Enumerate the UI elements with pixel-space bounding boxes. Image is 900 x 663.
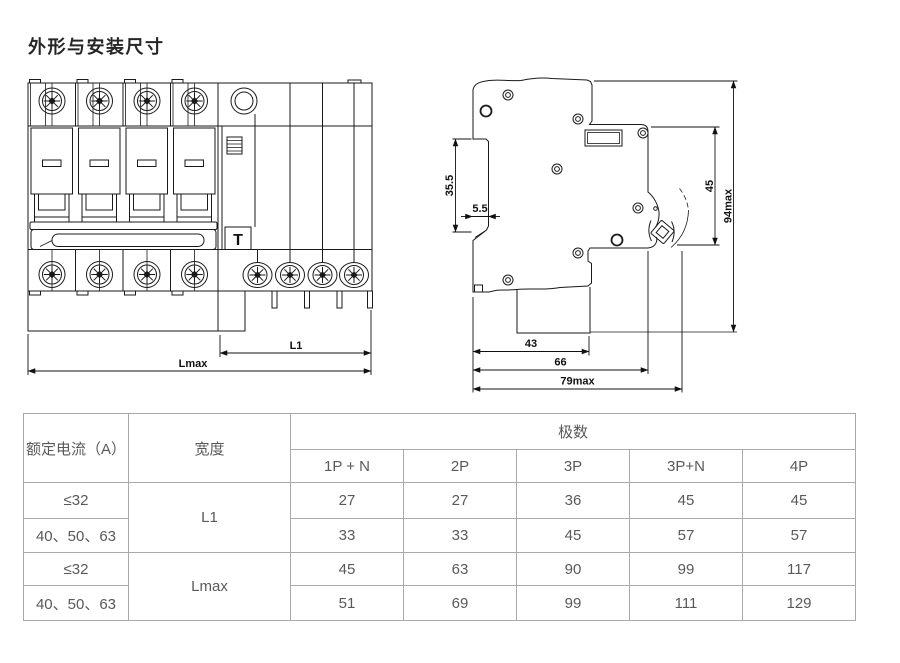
table-cell: 33 <box>404 519 517 553</box>
dim-label-lmax: Lmax <box>179 358 209 370</box>
table-cell: 117 <box>743 553 856 586</box>
table-cell: 57 <box>630 519 743 553</box>
test-button-label: T <box>233 232 243 249</box>
dim-label-66: 66 <box>554 357 566 369</box>
front-view-dimensions: L1 Lmax <box>28 310 371 375</box>
breaker-side-outline <box>473 78 659 292</box>
dimensions-table: 额定电流（A） 宽度 极数 1P + N 2P 3P 3P+N 4P ≤32 L… <box>23 413 856 621</box>
table-row: ≤32 L1 27 27 36 45 45 <box>24 483 856 519</box>
table-row: ≤32 Lmax 45 63 90 99 117 <box>24 553 856 586</box>
table-cell: 63 <box>404 553 517 586</box>
rating-label-window <box>585 130 622 146</box>
dim-label-43: 43 <box>525 338 537 350</box>
toggle-tie-bar <box>30 222 217 250</box>
dim-label-5-5: 5.5 <box>472 203 487 215</box>
dim-label-94max: 94max <box>723 188 735 223</box>
side-view-drawing: 35.5 5.5 45 94max 43 66 <box>444 78 738 392</box>
dim-label-l1: L1 <box>290 340 303 352</box>
handle-slots <box>35 194 212 222</box>
table-cell: 45 <box>517 519 630 553</box>
test-button <box>231 88 257 114</box>
table-cell: 90 <box>517 553 630 586</box>
table-cell: 45 <box>630 483 743 519</box>
rcd-block: T <box>222 83 373 308</box>
rcd-slider <box>227 137 242 154</box>
rcd-pins <box>272 291 373 308</box>
table-cell: 129 <box>743 586 856 621</box>
dimension-drawings: T L1 Lmax <box>0 0 900 410</box>
bottom-extension <box>517 287 590 333</box>
table-header-width: 宽度 <box>129 414 291 483</box>
table-cell: 45 <box>743 483 856 519</box>
table-cell: 99 <box>517 586 630 621</box>
side-view-dimensions: 35.5 5.5 45 94max 43 66 <box>444 81 738 393</box>
table-cell: 33 <box>291 519 404 553</box>
foot-notch <box>475 285 483 292</box>
dim-label-79max: 79max <box>560 376 595 388</box>
pivot-dot <box>654 207 658 211</box>
table-cell-current: ≤32 <box>24 553 129 586</box>
toggle-handle-side <box>649 189 689 248</box>
table-cell-current: 40、50、63 <box>24 586 129 621</box>
table-cell: 27 <box>404 483 517 519</box>
mounting-hole-bottom <box>612 235 623 246</box>
case-rivets <box>503 90 648 285</box>
table-cell-width-label: L1 <box>129 483 291 553</box>
table-cell-current: 40、50、63 <box>24 519 129 553</box>
table-cell: 99 <box>630 553 743 586</box>
table-header-pole-col: 3P <box>517 450 630 483</box>
front-view-drawing: T L1 Lmax <box>28 80 373 376</box>
table-cell: 36 <box>517 483 630 519</box>
table-cell: 69 <box>404 586 517 621</box>
table-cell: 27 <box>291 483 404 519</box>
table-cell: 111 <box>630 586 743 621</box>
dim-label-35-5: 35.5 <box>444 175 456 196</box>
table-header-pole-col: 1P + N <box>291 450 404 483</box>
table-cell-width-label: Lmax <box>129 553 291 621</box>
mounting-hole-top <box>481 106 492 117</box>
table-cell-current: ≤32 <box>24 483 129 519</box>
table-header-poles: 极数 <box>291 414 856 450</box>
breaker-front-outline <box>28 83 372 331</box>
table-header-pole-col: 4P <box>743 450 856 483</box>
table-header-pole-col: 3P+N <box>630 450 743 483</box>
pole-bodies <box>31 128 215 194</box>
table-cell: 45 <box>291 553 404 586</box>
table-cell: 51 <box>291 586 404 621</box>
table-cell: 57 <box>743 519 856 553</box>
table-header-current: 额定电流（A） <box>24 414 129 483</box>
table-header-pole-col: 2P <box>404 450 517 483</box>
page: 外形与安装尺寸 <box>0 0 900 663</box>
rcd-terminal-screws <box>243 263 369 288</box>
dim-label-45: 45 <box>704 180 716 192</box>
